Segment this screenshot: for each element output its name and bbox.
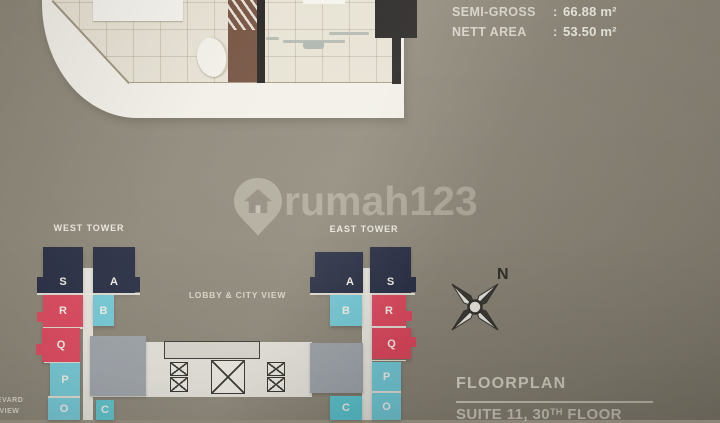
nett-area-separator: : bbox=[553, 24, 563, 39]
semi-gross-separator: : bbox=[553, 4, 563, 19]
unit-block-east-q-ext bbox=[410, 337, 416, 347]
unit-block-west-a: A bbox=[93, 247, 135, 293]
nett-area-value: 53.50 m² bbox=[563, 24, 617, 39]
unit-block-east-r: R bbox=[372, 295, 406, 326]
unit-letter: O bbox=[60, 403, 69, 415]
unit-letter: Q bbox=[387, 338, 396, 350]
unit-letter: B bbox=[342, 305, 350, 317]
boulevard-label: LEVARD bbox=[0, 397, 23, 404]
bed-shape bbox=[93, 0, 183, 21]
lift-lobby-box bbox=[164, 341, 260, 359]
elevator-icon bbox=[211, 360, 245, 394]
west-core-block bbox=[90, 336, 146, 396]
unit-block-east-q: Q bbox=[372, 328, 411, 359]
wall-segment bbox=[257, 0, 265, 83]
suite-floor-text: FLOOR bbox=[563, 406, 622, 423]
suite-text: SUITE 11, 30 bbox=[456, 406, 550, 423]
elevator-icon bbox=[267, 362, 285, 376]
unit-block-east-o: O bbox=[372, 393, 401, 420]
floorplan-brochure-photo: SEMI-GROSS : 66.88 m² NETT AREA : 53.50 … bbox=[0, 0, 720, 420]
unit-letter: C bbox=[101, 404, 109, 416]
unit-letter: S bbox=[387, 276, 394, 288]
semi-gross-value: 66.88 m² bbox=[563, 4, 617, 19]
unit-block-west-s: S bbox=[43, 247, 83, 293]
unit-block-west-s-ext bbox=[37, 277, 44, 293]
east-tower-label: EAST TOWER bbox=[314, 224, 414, 234]
unit-block-west-c: C bbox=[96, 400, 114, 420]
unit-block-east-s-ext bbox=[410, 277, 416, 292]
city-view-label: Y VIEW bbox=[0, 408, 19, 415]
unit-block-west-p: P bbox=[50, 363, 80, 396]
suite-floor-label: SUITE 11, 30TH FLOOR bbox=[456, 406, 622, 423]
unit-letter: R bbox=[59, 305, 67, 317]
unit-block-east-a: A bbox=[315, 252, 363, 293]
unit-block-west-q: Q bbox=[42, 328, 80, 362]
unit-letter: Q bbox=[57, 339, 66, 351]
unit-letter: R bbox=[385, 305, 393, 317]
unit-wall-bottom bbox=[130, 82, 400, 84]
kitchen-sink bbox=[303, 41, 324, 49]
unit-block-east-p: P bbox=[372, 362, 401, 391]
unit-block-east-a-ext bbox=[310, 277, 316, 293]
floor-slab-line bbox=[372, 360, 406, 362]
wardrobe-shape bbox=[228, 0, 258, 82]
elevator-icon bbox=[170, 362, 188, 376]
watermark-brand: rumah123 bbox=[284, 178, 478, 225]
elevator-icon bbox=[267, 377, 285, 392]
unit-block-west-q-ext bbox=[36, 344, 43, 355]
home-pin-icon bbox=[232, 176, 284, 238]
unit-letter: B bbox=[100, 305, 108, 317]
unit-block-west-r: R bbox=[43, 295, 83, 327]
semi-gross-label: SEMI-GROSS bbox=[452, 5, 553, 19]
compass-icon bbox=[449, 281, 501, 333]
east-core-block bbox=[310, 343, 363, 393]
nett-area-label: NETT AREA bbox=[452, 25, 553, 39]
unit-block-east-r-ext bbox=[405, 311, 412, 321]
unit-block-east-s: S bbox=[370, 247, 411, 293]
unit-block-west-o: O bbox=[48, 398, 80, 420]
unit-letter: S bbox=[59, 276, 66, 288]
unit-letter: P bbox=[383, 371, 390, 383]
suite-ordinal: TH bbox=[550, 407, 563, 417]
footer-divider bbox=[456, 401, 653, 403]
unit-letter: P bbox=[61, 374, 68, 386]
unit-letter: A bbox=[346, 276, 354, 288]
cabinet-shape bbox=[303, 0, 345, 4]
west-tower-label: WEST TOWER bbox=[39, 223, 139, 233]
lobby-city-view-label: LOBBY & CITY VIEW bbox=[180, 290, 295, 300]
kitchen-counter bbox=[329, 32, 369, 35]
unit-block-west-b: B bbox=[93, 295, 114, 326]
elevator-icon bbox=[170, 377, 188, 392]
compass-north-label: N bbox=[497, 266, 509, 284]
service-shaft-block bbox=[375, 0, 417, 38]
unit-letter: A bbox=[110, 276, 118, 288]
unit-block-east-b: B bbox=[330, 295, 362, 326]
kitchen-counter bbox=[266, 37, 279, 40]
unit-letter: C bbox=[342, 402, 350, 414]
unit-block-west-a-ext bbox=[134, 277, 140, 292]
wall-pillar bbox=[392, 38, 401, 84]
unit-letter: O bbox=[382, 401, 391, 413]
unit-block-east-c: C bbox=[330, 396, 362, 420]
wardrobe-hatch-pattern bbox=[228, 0, 258, 30]
unit-block-west-r-ext bbox=[37, 312, 44, 322]
floorplan-title: FLOORPLAN bbox=[456, 375, 566, 393]
area-info: SEMI-GROSS : 66.88 m² NETT AREA : 53.50 … bbox=[452, 4, 617, 39]
